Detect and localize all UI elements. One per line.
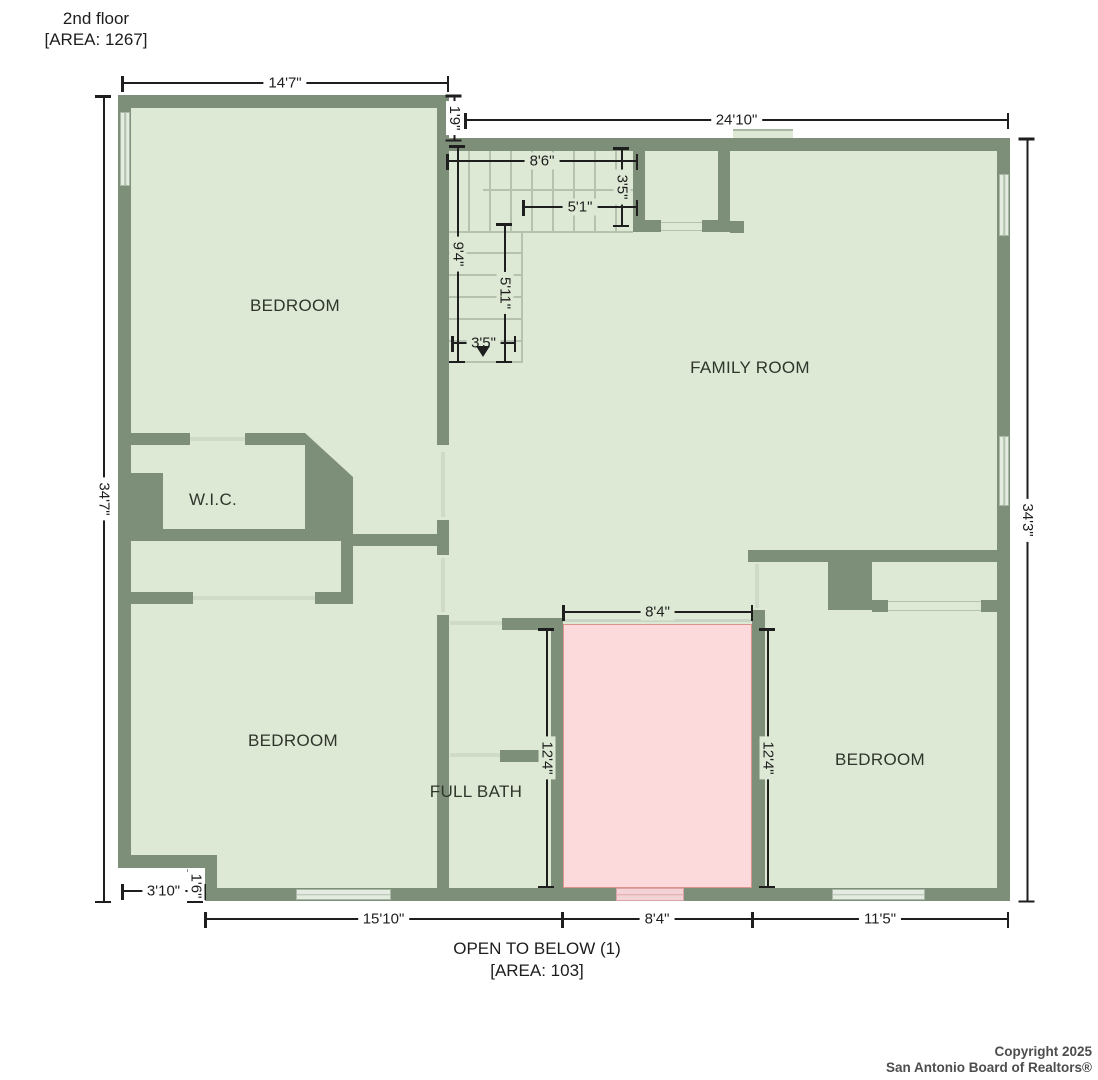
wall-segment bbox=[748, 550, 997, 562]
stair-divider-line bbox=[483, 189, 633, 191]
wall-segment bbox=[437, 615, 449, 888]
dim-stair-top: 8'6" bbox=[447, 160, 637, 162]
wall-segment bbox=[730, 221, 744, 233]
closet-door bbox=[661, 222, 702, 231]
dim-label: 34'7" bbox=[96, 477, 113, 520]
dim-open-left: 12'4" bbox=[546, 629, 548, 887]
wall-segment bbox=[315, 592, 353, 604]
dim-right-height: 34'3" bbox=[1027, 139, 1029, 902]
wall-segment bbox=[118, 95, 449, 108]
dim-label: 14'7" bbox=[263, 74, 306, 91]
wall-segment bbox=[997, 138, 1010, 901]
dim-stair-left: 9'4" bbox=[457, 146, 459, 362]
wall-segment bbox=[872, 600, 888, 612]
window bbox=[999, 174, 1009, 236]
dim-label: 11'5" bbox=[859, 910, 901, 927]
wall-segment bbox=[645, 220, 661, 232]
wall-segment bbox=[130, 433, 190, 445]
floorplan-page: { "title": {"line1": "2nd floor", "line2… bbox=[0, 0, 1098, 1080]
dim-open-right: 12'4" bbox=[767, 629, 769, 887]
wall-segment bbox=[245, 433, 305, 445]
stair-stringer-line bbox=[521, 232, 523, 363]
dim-label: 12'4" bbox=[760, 736, 777, 779]
window bbox=[296, 889, 391, 900]
dim-open-top: 8'4" bbox=[563, 611, 752, 613]
window bbox=[832, 889, 925, 900]
door-opening bbox=[193, 596, 315, 600]
wall-segment bbox=[130, 592, 193, 604]
dim-stair-mid: 5'1" bbox=[523, 206, 637, 208]
wall-segment bbox=[718, 150, 730, 232]
floor-title: 2nd floor [AREA: 1267] bbox=[16, 8, 176, 50]
dim-top-right-width: 24'10" bbox=[465, 119, 1008, 121]
wall-segment bbox=[353, 534, 449, 546]
wall-segment bbox=[981, 600, 997, 612]
wall-segment bbox=[828, 562, 872, 610]
dim-label: 5'1" bbox=[563, 198, 598, 215]
room-label-family-room: FAMILY ROOM bbox=[690, 358, 810, 378]
door-opening bbox=[190, 437, 245, 441]
dim-bottom-right: 11'5" bbox=[752, 918, 1008, 920]
floor-fill-left bbox=[118, 95, 449, 901]
door-opening bbox=[441, 558, 445, 612]
dim-label: 15'10" bbox=[358, 910, 410, 927]
dim-left-height: 34'7" bbox=[103, 96, 105, 902]
dim-label: 1'9" bbox=[446, 101, 463, 136]
copyright-line: Copyright 2025 bbox=[886, 1044, 1092, 1060]
dim-label: 3'10" bbox=[142, 882, 185, 899]
dim-bottom-left: 15'10" bbox=[205, 918, 562, 920]
wall-segment-diagonal bbox=[305, 433, 353, 541]
dim-label: 9'4" bbox=[450, 237, 467, 272]
door-opening bbox=[441, 452, 445, 517]
room-label-bedroom-3: BEDROOM bbox=[835, 750, 925, 770]
open-to-below-area-line: [AREA: 103] bbox=[387, 960, 687, 982]
dim-top-left-width: 14'7" bbox=[122, 82, 448, 84]
down-arrow-icon bbox=[476, 346, 490, 357]
window bbox=[120, 112, 130, 186]
dim-offset-height: 1'9" bbox=[454, 96, 456, 141]
dim-label: 12'4" bbox=[539, 736, 556, 779]
door-opening bbox=[450, 753, 500, 757]
wall-segment bbox=[437, 95, 449, 445]
dim-label: 3'5" bbox=[614, 170, 631, 205]
dim-label: 8'4" bbox=[640, 910, 675, 927]
dim-label: 24'10" bbox=[711, 111, 763, 128]
closet-door bbox=[888, 601, 981, 611]
wall-segment bbox=[702, 220, 718, 232]
dim-stair-right: 3'5" bbox=[621, 148, 623, 226]
door-opening bbox=[755, 564, 759, 608]
window bbox=[616, 888, 684, 901]
room-label-bedroom-2: BEDROOM bbox=[248, 731, 338, 751]
open-to-below-line: OPEN TO BELOW (1) bbox=[387, 938, 687, 960]
copyright-notice: Copyright 2025 San Antonio Board of Real… bbox=[886, 1044, 1092, 1076]
room-label-wic: W.I.C. bbox=[189, 490, 237, 510]
dim-label: 8'4" bbox=[640, 603, 675, 620]
dim-label: 1'6" bbox=[188, 869, 205, 904]
room-label-full-bath: FULL BATH bbox=[430, 782, 522, 802]
dim-stair-bottom: 3'5" bbox=[452, 342, 515, 344]
wall-segment bbox=[118, 855, 217, 868]
floor-title-line: 2nd floor bbox=[16, 8, 176, 29]
open-to-below-area bbox=[563, 624, 752, 888]
copyright-line: San Antonio Board of Realtors® bbox=[886, 1060, 1092, 1076]
door-opening bbox=[450, 621, 502, 625]
dim-bottom-mid: 8'4" bbox=[562, 918, 752, 920]
dim-label: 5'11" bbox=[497, 272, 514, 314]
open-to-below-caption: OPEN TO BELOW (1) [AREA: 103] bbox=[387, 938, 687, 982]
floor-area-line: [AREA: 1267] bbox=[16, 29, 176, 50]
dim-label: 8'6" bbox=[525, 152, 560, 169]
room-label-bedroom-1: BEDROOM bbox=[250, 296, 340, 316]
window bbox=[999, 436, 1009, 506]
dim-label: 34'3" bbox=[1019, 498, 1036, 541]
dim-notch-height: 1'6" bbox=[195, 870, 197, 902]
